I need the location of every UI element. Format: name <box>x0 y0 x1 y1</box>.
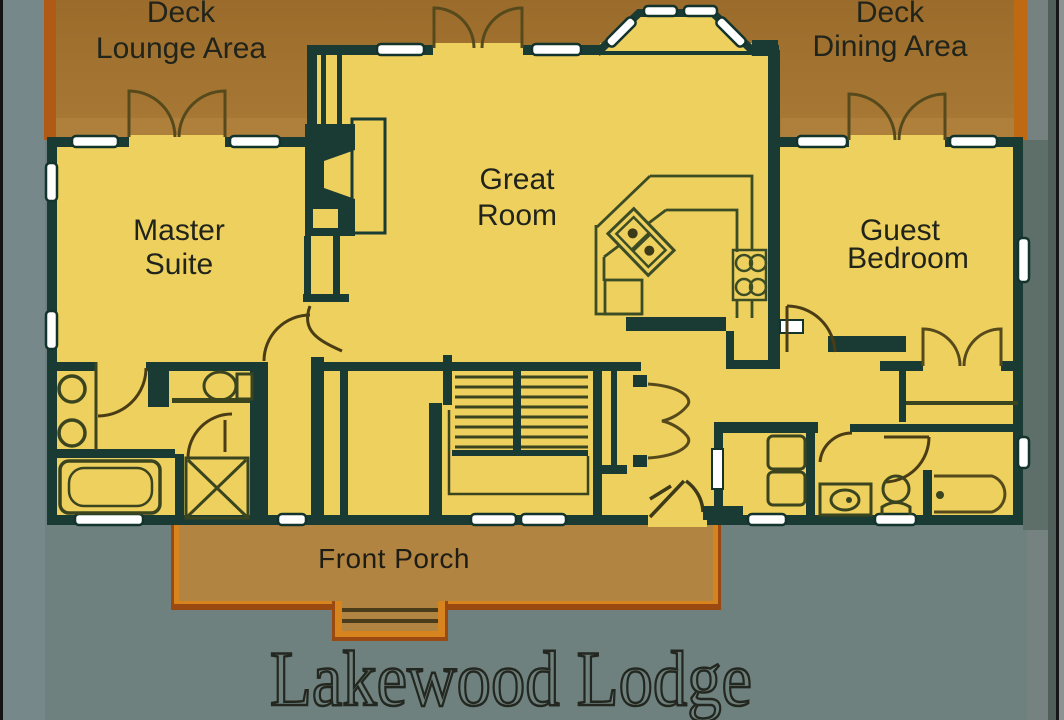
svg-text:Suite: Suite <box>145 248 213 281</box>
svg-text:Room: Room <box>477 199 557 232</box>
svg-text:Great: Great <box>479 163 555 196</box>
svg-text:Deck: Deck <box>147 0 216 29</box>
svg-text:Deck: Deck <box>856 0 925 29</box>
svg-text:Front Porch: Front Porch <box>318 543 470 574</box>
svg-text:Master: Master <box>133 214 225 247</box>
svg-text:Lounge Area: Lounge Area <box>96 32 266 65</box>
svg-text:Lakewood Lodge: Lakewood Lodge <box>270 635 752 720</box>
svg-text:Bedroom: Bedroom <box>847 242 969 275</box>
svg-text:Dining Area: Dining Area <box>812 30 967 63</box>
